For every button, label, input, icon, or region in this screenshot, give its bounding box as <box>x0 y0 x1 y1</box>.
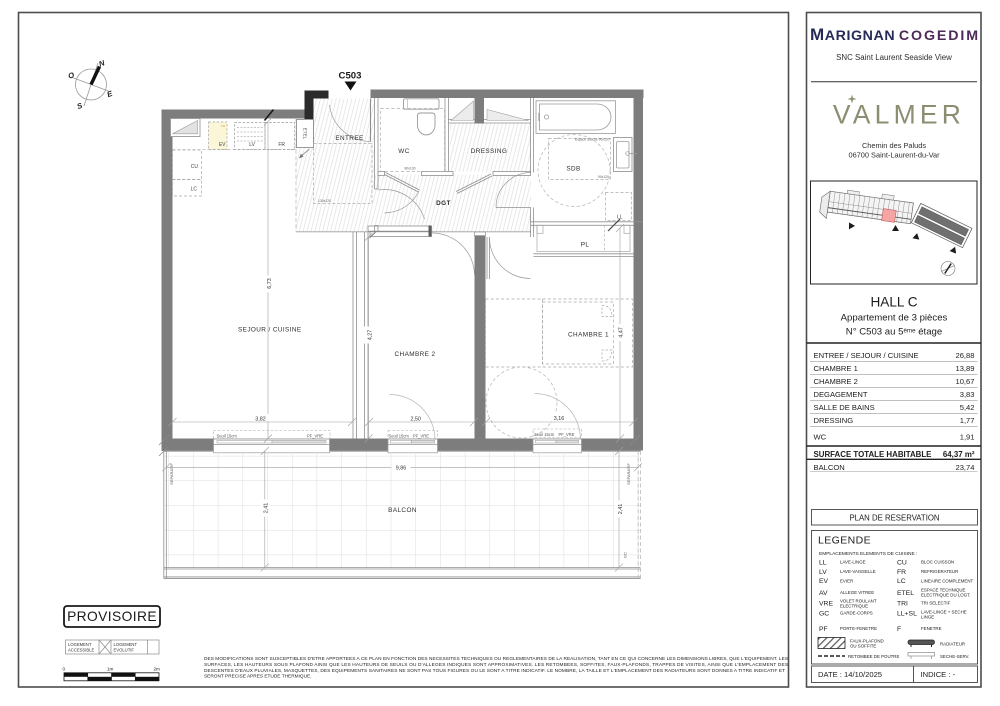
svg-text:SECHE-SERV.: SECHE-SERV. <box>940 654 969 659</box>
svg-text:DRESSING: DRESSING <box>814 416 854 425</box>
svg-text:TRI SELECTIF: TRI SELECTIF <box>921 601 951 606</box>
svg-text:Seuil 15cm: Seuil 15cm <box>217 433 238 438</box>
svg-text:Appartement de 3 pièces: Appartement de 3 pièces <box>841 313 948 324</box>
svg-text:FR: FR <box>897 569 906 576</box>
svg-text:GC: GC <box>819 611 829 618</box>
svg-text:13,89: 13,89 <box>955 364 974 373</box>
svg-text:WC: WC <box>814 433 827 442</box>
svg-text:PORTE-FENETRE: PORTE-FENETRE <box>840 626 877 631</box>
svg-text:LV: LV <box>819 569 827 576</box>
svg-text:CHAMBRE 2: CHAMBRE 2 <box>395 351 436 358</box>
svg-text:SDB: SDB <box>566 166 580 173</box>
svg-text:VALMER: VALMER <box>833 100 965 130</box>
svg-text:80x130: 80x130 <box>404 167 415 171</box>
svg-text:CU: CU <box>191 164 199 170</box>
svg-text:9,86: 9,86 <box>396 466 407 472</box>
svg-text:Chemin des Paluds: Chemin des Paluds <box>862 141 926 150</box>
svg-text:OU SOFFITE: OU SOFFITE <box>850 644 876 649</box>
svg-text:GC: GC <box>623 552 628 558</box>
svg-text:CHAMBRE 2: CHAMBRE 2 <box>814 377 858 386</box>
svg-text:130x220: 130x220 <box>318 199 331 203</box>
svg-text:PF: PF <box>819 626 828 633</box>
svg-text:C503: C503 <box>339 71 362 82</box>
svg-text:1,91: 1,91 <box>960 433 975 442</box>
svg-text:PF_VRE: PF_VRE <box>559 432 575 437</box>
svg-text:1m: 1m <box>107 667 114 672</box>
svg-text:Seuil 15cm: Seuil 15cm <box>389 433 410 438</box>
svg-text:BLOC CUISSON: BLOC CUISSON <box>921 560 954 565</box>
svg-text:N° C503 au 5ème étage: N° C503 au 5ème étage <box>846 327 942 338</box>
svg-text:SEPARATIF: SEPARATIF <box>626 463 631 485</box>
svg-text:LOGEMENT: LOGEMENT <box>68 642 92 647</box>
svg-text:LINGE: LINGE <box>921 615 934 620</box>
svg-text:RADIATEUR: RADIATEUR <box>940 642 965 647</box>
svg-text:SURFACES, LES HAUTEURS SOUS PL: SURFACES, LES HAUTEURS SOUS PLAFOND AINS… <box>204 662 788 668</box>
svg-text:SEPARATIF: SEPARATIF <box>169 463 174 485</box>
svg-text:ALLEGE VITREE: ALLEGE VITREE <box>840 590 874 595</box>
svg-text:DGT: DGT <box>436 200 451 207</box>
svg-text:2,41: 2,41 <box>618 504 624 515</box>
svg-text:LAVE-VAISSELLE: LAVE-VAISSELLE <box>840 569 876 574</box>
svg-text:4,47: 4,47 <box>619 327 625 338</box>
svg-text:LEGENDE: LEGENDE <box>818 535 871 547</box>
svg-text:ETEL: ETEL <box>897 590 914 597</box>
svg-text:MARIGNAN: MARIGNAN <box>810 25 895 44</box>
svg-text:ENTREE: ENTREE <box>335 135 363 142</box>
svg-text:AV: AV <box>819 590 828 597</box>
svg-text:REFRIGERATEUR: REFRIGERATEUR <box>921 569 958 574</box>
svg-text:PLAN DE RESERVATION: PLAN DE RESERVATION <box>849 514 939 523</box>
svg-text:0: 0 <box>63 667 66 672</box>
svg-text:2m: 2m <box>154 667 161 672</box>
svg-text:DATE : 14/10/2025: DATE : 14/10/2025 <box>818 670 882 679</box>
svg-text:BALCON: BALCON <box>388 507 417 514</box>
svg-text:LC: LC <box>191 187 198 193</box>
svg-text:LC: LC <box>897 578 906 585</box>
svg-text:HALL C: HALL C <box>870 295 917 310</box>
svg-text:DEGAGEMENT: DEGAGEMENT <box>814 390 868 399</box>
svg-text:ELECTRIQUE: ELECTRIQUE <box>840 604 868 609</box>
svg-text:SALLE DE BAINS: SALLE DE BAINS <box>814 403 875 412</box>
svg-text:PF_VRE: PF_VRE <box>307 433 323 438</box>
svg-text:RETOMBEE DE POUTRE: RETOMBEE DE POUTRE <box>848 654 899 659</box>
svg-text:6,73: 6,73 <box>267 278 273 289</box>
svg-text:3,82: 3,82 <box>255 416 266 422</box>
svg-text:SNC Saint Laurent Seaside View: SNC Saint Laurent Seaside View <box>836 53 952 62</box>
svg-text:BALCON: BALCON <box>814 463 845 472</box>
svg-text:Espace douche 90x120: Espace douche 90x120 <box>575 138 610 142</box>
svg-text:EVIER: EVIER <box>840 578 853 583</box>
svg-text:EVOLUTIF: EVOLUTIF <box>114 647 135 652</box>
svg-text:90x120: 90x120 <box>598 175 609 179</box>
svg-text:ENTREE / SEJOUR / CUISINE: ENTREE / SEJOUR / CUISINE <box>814 351 919 360</box>
svg-text:LOGEMENT: LOGEMENT <box>114 642 138 647</box>
svg-text:DRESSING: DRESSING <box>471 148 508 155</box>
svg-text:3,16: 3,16 <box>554 416 565 422</box>
svg-text:SEJOUR / CUISINE: SEJOUR / CUISINE <box>238 327 302 334</box>
svg-text:64,37 m²: 64,37 m² <box>943 450 975 459</box>
svg-text:FR: FR <box>278 142 285 148</box>
svg-text:10,67: 10,67 <box>955 377 974 386</box>
svg-text:EV: EV <box>819 578 829 585</box>
svg-text:VRE: VRE <box>819 601 833 608</box>
svg-text:26,88: 26,88 <box>955 351 974 360</box>
svg-text:COGEDIМ: COGEDIМ <box>899 28 980 44</box>
svg-text:LINEAIRE COMPLEMENT: LINEAIRE COMPLEMENT <box>921 578 974 583</box>
svg-text:PL: PL <box>581 242 590 249</box>
svg-text:Seuil 15cm: Seuil 15cm <box>534 432 555 437</box>
svg-text:DES MODIFICATIONS SONT SUSCEPT: DES MODIFICATIONS SONT SUSCEPTIBLES D'ET… <box>204 656 788 662</box>
svg-text:SERONT PRECISE APRES ETUDE THE: SERONT PRECISE APRES ETUDE THERMIQUE. <box>204 674 312 680</box>
svg-text:LL: LL <box>819 560 827 567</box>
svg-text:5,42: 5,42 <box>960 403 975 412</box>
svg-text:23,74: 23,74 <box>955 463 974 472</box>
svg-text:EV: EV <box>219 142 226 148</box>
svg-text:1,77: 1,77 <box>960 416 975 425</box>
svg-text:CHAMBRE 1: CHAMBRE 1 <box>568 332 609 339</box>
svg-text:SURFACE TOTALE HABITABLE: SURFACE TOTALE HABITABLE <box>814 450 932 459</box>
svg-text:2,41: 2,41 <box>264 503 270 514</box>
svg-text:LAVE-LINGE: LAVE-LINGE <box>840 560 866 565</box>
svg-text:INDICE : -: INDICE : - <box>921 670 956 679</box>
svg-text:ETEL: ETEL <box>303 128 308 140</box>
svg-text:TH: TH <box>221 124 225 128</box>
svg-text:DESCENTES D'EAUX PLUVIALES, MA: DESCENTES D'EAUX PLUVIALES, MASQUETTES, … <box>204 668 785 674</box>
svg-text:CHAMBRE 1: CHAMBRE 1 <box>814 364 858 373</box>
svg-text:2,50: 2,50 <box>410 416 421 422</box>
svg-text:TRI: TRI <box>897 601 908 608</box>
svg-text:ACCESSIBLE: ACCESSIBLE <box>68 647 95 652</box>
svg-text:LV: LV <box>249 142 255 148</box>
svg-text:ELECTRIQUE DU LOGT.: ELECTRIQUE DU LOGT. <box>921 593 971 598</box>
svg-text:CU: CU <box>897 560 907 567</box>
svg-text:PROVISOIRE: PROVISOIRE <box>67 609 157 624</box>
svg-text:06700 Saint-Laurent-du-Var: 06700 Saint-Laurent-du-Var <box>848 150 940 159</box>
svg-text:EMPLACEMENTS ELEMENTS DE CUISI: EMPLACEMENTS ELEMENTS DE CUISINE : <box>819 551 917 557</box>
svg-text:FENETRE: FENETRE <box>921 626 942 631</box>
svg-text:WC: WC <box>398 148 409 155</box>
svg-text:GARDE-CORPS: GARDE-CORPS <box>840 611 873 616</box>
svg-text:F: F <box>897 626 901 633</box>
svg-text:PF_VRE: PF_VRE <box>413 433 429 438</box>
svg-text:3,83: 3,83 <box>960 390 975 399</box>
svg-text:4,27: 4,27 <box>367 330 373 341</box>
svg-text:LL+SL: LL+SL <box>897 611 917 618</box>
